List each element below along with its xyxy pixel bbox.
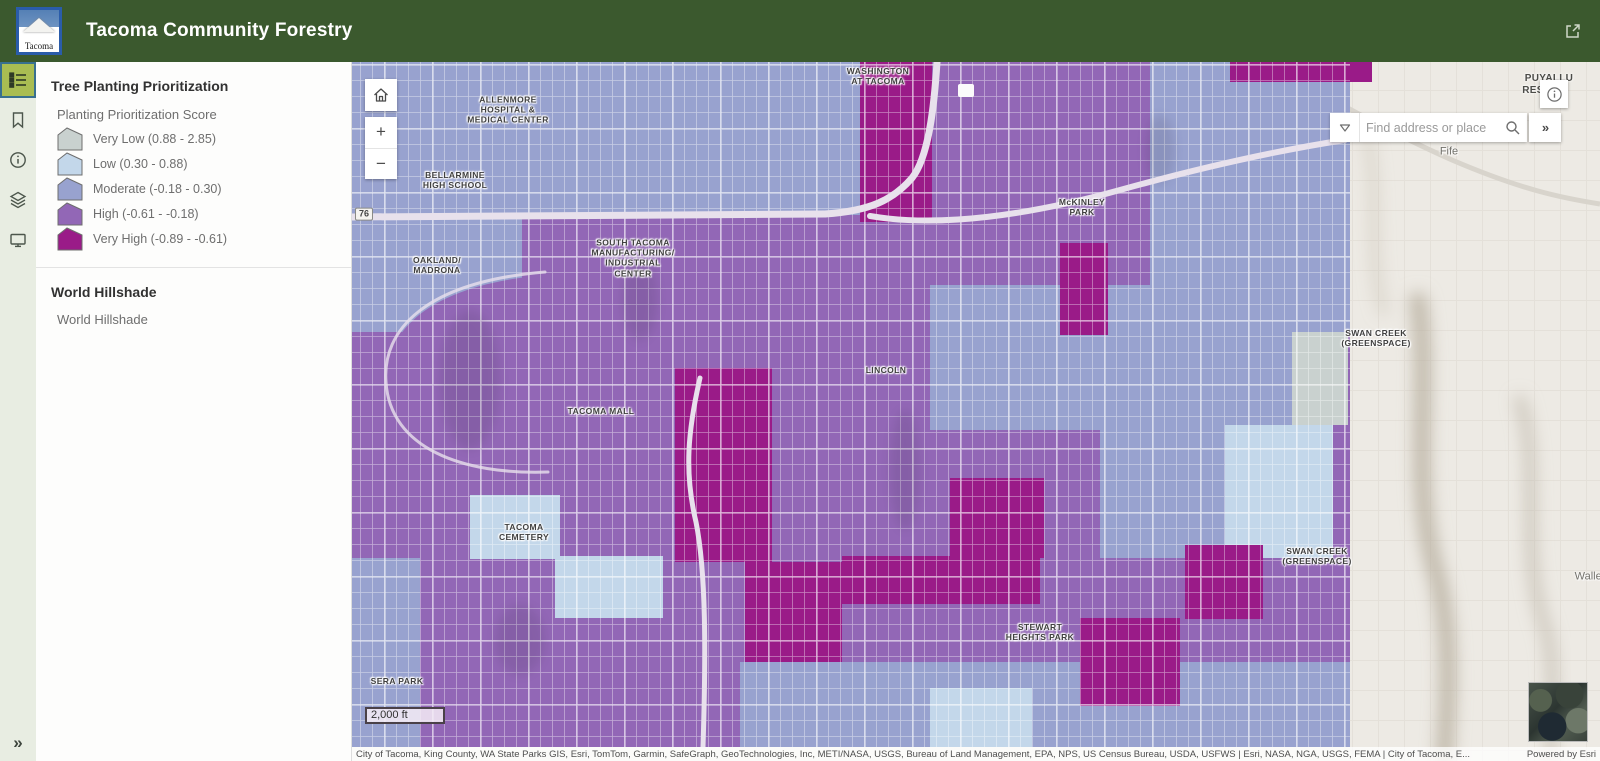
class-label: Low (0.30 - 0.88) <box>93 157 188 171</box>
search-input[interactable] <box>1360 113 1499 142</box>
map-graphics <box>352 62 1600 761</box>
search-source-dropdown[interactable] <box>1330 113 1360 142</box>
legend-class-row: Very High (-0.89 - -0.61) <box>57 226 351 251</box>
home-button[interactable] <box>365 79 397 111</box>
mountain-logo-art <box>19 10 59 41</box>
app-header: Tacoma Tacoma Community Forestry <box>0 0 1600 62</box>
home-icon <box>372 86 390 104</box>
legend-class-row: Low (0.30 - 0.88) <box>57 151 351 176</box>
layers-icon <box>9 191 27 209</box>
class-swatch-icon <box>57 202 83 226</box>
search-button[interactable] <box>1499 113 1527 142</box>
search-icon <box>1505 120 1521 136</box>
class-swatch-icon <box>57 177 83 201</box>
legend-panel: Tree Planting Prioritization Planting Pr… <box>36 62 352 761</box>
hillshade-title: World Hillshade <box>36 268 351 300</box>
hillshade-item-label: World Hillshade <box>36 300 351 327</box>
class-swatch-icon <box>57 152 83 176</box>
class-label: Very High (-0.89 - -0.61) <box>93 232 227 246</box>
basemap-icon <box>9 231 27 249</box>
collapse-strip-button[interactable]: » <box>0 733 36 753</box>
zoom-control: + − <box>365 117 397 179</box>
legend-icon <box>9 71 27 89</box>
class-label: Moderate (-0.18 - 0.30) <box>93 182 222 196</box>
sidebar-item-basemap[interactable] <box>0 222 36 258</box>
bookmark-icon <box>9 111 27 129</box>
class-label: High (-0.61 - -0.18) <box>93 207 199 221</box>
legend-class-row: Very Low (0.88 - 2.85) <box>57 126 351 151</box>
dropdown-triangle-icon <box>1339 123 1351 133</box>
share-icon <box>1564 22 1582 40</box>
legend-class-row: Moderate (-0.18 - 0.30) <box>57 176 351 201</box>
powered-by-esri: Powered by Esri <box>1513 749 1600 760</box>
class-label: Very Low (0.88 - 2.85) <box>93 132 216 146</box>
map-info-button[interactable] <box>1540 80 1568 108</box>
search-box <box>1330 113 1527 142</box>
scale-bar: 2,000 ft <box>365 707 445 724</box>
legend-field-title: Planting Prioritization Score <box>36 94 351 126</box>
share-button[interactable] <box>1562 20 1584 42</box>
logo-text: Tacoma <box>19 41 59 52</box>
map-canvas[interactable]: WASHINGTONAT TACOMAALLENMOREHOSPITAL &ME… <box>352 62 1600 761</box>
legend-layer-title: Tree Planting Prioritization <box>36 62 351 94</box>
attribution-bar: City of Tacoma, King County, WA State Pa… <box>352 747 1600 761</box>
sidebar-item-layers[interactable] <box>0 182 36 218</box>
widget-icon-strip: » <box>0 62 36 761</box>
legend-class-list: Very Low (0.88 - 2.85)Low (0.30 - 0.88)M… <box>36 126 351 251</box>
legend-class-row: High (-0.61 - -0.18) <box>57 201 351 226</box>
sidebar-item-bookmarks[interactable] <box>0 102 36 138</box>
sidebar-item-legend[interactable] <box>0 62 36 98</box>
zoom-in-button[interactable]: + <box>365 117 397 148</box>
app-title: Tacoma Community Forestry <box>86 20 352 42</box>
basemap-thumbnail[interactable] <box>1528 682 1588 742</box>
class-swatch-icon <box>57 227 83 251</box>
widget-expand-button[interactable]: » <box>1529 113 1561 142</box>
class-swatch-icon <box>57 127 83 151</box>
info-icon <box>9 151 27 169</box>
tacoma-logo: Tacoma <box>16 7 62 55</box>
sidebar-item-information[interactable] <box>0 142 36 178</box>
zoom-out-button[interactable]: − <box>365 149 397 180</box>
info-circle-icon <box>1546 86 1563 103</box>
attribution-text: City of Tacoma, King County, WA State Pa… <box>352 749 1513 760</box>
